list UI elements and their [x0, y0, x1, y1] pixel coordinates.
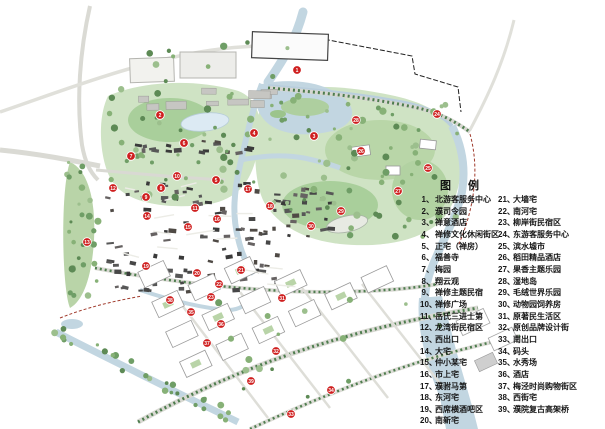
map-marker-32: 32: [272, 347, 281, 356]
tree: [140, 116, 145, 121]
marker-number: 5: [215, 178, 218, 184]
map-marker-37: 37: [203, 339, 212, 348]
legend-item: 21、大墙宅: [498, 194, 577, 206]
tree: [333, 127, 336, 130]
tree: [92, 261, 98, 267]
legend-item-label: 翔云观: [435, 276, 459, 288]
tree: [119, 140, 125, 146]
legend-item: 19、西席横酒吧区: [420, 404, 499, 416]
tree: [143, 373, 148, 378]
marker-number: 33: [288, 412, 294, 418]
legend-item: 23、柳岸街民宿区: [498, 217, 577, 229]
legend-item-number: 4、: [420, 229, 434, 241]
tree: [320, 198, 323, 201]
tree: [216, 146, 223, 153]
oldtown-building: [213, 227, 220, 232]
map-marker-25: 25: [424, 164, 433, 173]
map-marker-35: 35: [187, 308, 196, 317]
legend-item-number: 26、: [498, 252, 512, 264]
tree: [165, 381, 169, 385]
legend-item: 9、禅修主题民宿: [420, 287, 499, 299]
tree: [162, 387, 168, 393]
tree: [245, 356, 252, 363]
tree: [217, 402, 224, 409]
tree: [164, 79, 168, 83]
tree: [204, 105, 211, 112]
oldtown-building: [115, 285, 119, 288]
tree: [404, 302, 408, 306]
tree: [373, 211, 378, 216]
map-marker-13: 13: [83, 238, 92, 247]
marker-number: 6: [183, 141, 186, 147]
oldtown-building: [205, 201, 212, 205]
tree: [203, 397, 207, 401]
tree: [280, 172, 287, 179]
marker-number: 37: [204, 341, 210, 347]
legend-item-label: 禅修主题民宿: [435, 287, 483, 299]
legend-item-number: 20、: [420, 415, 434, 427]
lane: [217, 238, 238, 239]
map-marker-4: 4: [250, 129, 259, 138]
south-block: [166, 320, 199, 347]
oldtown-building: [175, 274, 183, 279]
tree: [107, 111, 112, 116]
marker-number: 23: [208, 295, 214, 301]
legend-item-label: 果香主题乐园: [513, 264, 561, 276]
legend-item-number: 34、: [498, 346, 512, 358]
tree: [346, 379, 351, 384]
tree: [346, 188, 352, 194]
legend-item-number: 35、: [498, 357, 512, 369]
map-marker-38: 38: [166, 296, 175, 305]
marker-number: 17: [245, 187, 251, 193]
legend-item-label: 北游客服务中心: [435, 194, 491, 206]
oldtown-building: [249, 217, 256, 221]
lane: [266, 267, 283, 269]
legend-item: 3、禅意酒店: [420, 217, 499, 229]
oldtown-building: [238, 184, 242, 188]
industrial-slab: [251, 100, 265, 107]
tree: [401, 124, 408, 131]
oldtown-building-east: [324, 218, 328, 221]
oldtown-building-east: [286, 224, 290, 227]
legend-item: 22、南河宅: [498, 206, 577, 218]
legend-item: 31、原著民生活区: [498, 311, 577, 323]
legend-item: 14、大宅: [420, 346, 499, 358]
marker-number: 30: [308, 224, 314, 230]
legend-item: 13、西出口: [420, 334, 499, 346]
marker-number: 8: [160, 186, 163, 192]
legend-item-number: 7、: [420, 264, 434, 276]
oldtown-building: [187, 271, 192, 274]
tree: [392, 233, 399, 240]
tree: [213, 126, 217, 130]
tree: [243, 367, 250, 374]
legend-item: 25、滨水墟市: [498, 241, 577, 253]
map-marker-3: 3: [310, 132, 319, 141]
legend-item-label: 南河宅: [513, 206, 537, 218]
tree: [154, 90, 161, 97]
marker-number: 32: [273, 349, 279, 355]
legend-item-label: 禅修广场: [435, 299, 467, 311]
legend-item-number: 9、: [420, 287, 434, 299]
marker-number: 27: [395, 189, 401, 195]
legend-item-label: 稻田精品酒店: [513, 252, 561, 264]
lane: [157, 247, 177, 249]
tree: [413, 150, 419, 156]
tree: [347, 297, 353, 303]
tree: [247, 116, 254, 123]
legend-item: 27、果香主题乐园: [498, 264, 577, 276]
legend-item-number: 21、: [498, 194, 512, 206]
tree: [96, 343, 99, 346]
marker-number: 10: [174, 174, 180, 180]
tree: [393, 124, 399, 130]
legend-item-number: 1、: [420, 194, 434, 206]
legend-item-label: 大墙宅: [513, 194, 537, 206]
map-marker-1: 1: [293, 66, 302, 75]
legend-item-label: 原著民生活区: [513, 311, 561, 323]
oldtown-building: [258, 232, 262, 236]
marker-number: 31: [279, 296, 285, 302]
legend-item: 15、仲小某宅: [420, 357, 499, 369]
oldtown-building-east: [327, 227, 335, 231]
map-marker-24: 24: [433, 110, 442, 119]
oldtown-building: [153, 254, 158, 259]
tree: [227, 94, 233, 100]
legend-item: 17、濮驸马第: [420, 381, 499, 393]
legend-item: 32、原创品牌设计街: [498, 322, 577, 334]
tree: [150, 160, 154, 164]
building-north-3: [130, 57, 175, 83]
legend-item: 11、岳氏三进士第: [420, 311, 499, 323]
map-marker-15: 15: [184, 223, 193, 232]
tree: [71, 293, 76, 298]
pavilion-park-3: [420, 139, 437, 150]
marker-number: 25: [425, 166, 431, 172]
legend-item-number: 37、: [498, 381, 512, 393]
legend-item: 18、东河宅: [420, 392, 499, 404]
oldtown-building: [199, 195, 203, 198]
tree: [379, 108, 386, 115]
tree: [223, 417, 228, 422]
oldtown-building: [254, 189, 259, 194]
oldtown-building-north: [174, 148, 182, 153]
tree: [400, 180, 405, 185]
legend-item-number: 31、: [498, 311, 512, 323]
legend-item: 34、码头: [498, 346, 577, 358]
oldtown-building: [215, 211, 222, 214]
legend-item-number: 29、: [498, 287, 512, 299]
legend-item-number: 28、: [498, 276, 512, 288]
legend-item-label: 东游客服务中心: [513, 229, 569, 241]
legend-item-label: 梅泾时尚购物街区: [513, 381, 577, 393]
tree: [157, 121, 162, 126]
tree: [252, 180, 255, 183]
tree: [118, 86, 124, 92]
industrial-slab: [228, 99, 249, 105]
oldtown-building: [237, 252, 242, 256]
legend-item: 39、濮院复古高架桥: [498, 404, 577, 416]
tree: [290, 97, 297, 104]
legend-item-number: 38、: [498, 392, 512, 404]
tree: [220, 154, 227, 161]
tree: [307, 128, 312, 133]
oldtown-building: [168, 228, 176, 233]
tree: [71, 240, 76, 245]
tree: [285, 46, 289, 50]
legend-item-label: 柳岸街民宿区: [513, 217, 561, 229]
legend-item: 5、正宅（禅房）: [420, 241, 499, 253]
tree: [391, 113, 394, 116]
tree: [111, 353, 115, 357]
legend-column-1: 1、北游客服务中心2、濮司令园3、禅意酒店4、禅修文化休闲街区5、正宅（禅房）6…: [420, 194, 499, 427]
marker-number: 22: [216, 282, 222, 288]
industrial-slab: [147, 104, 159, 110]
tree: [277, 332, 281, 336]
industrial-slab: [138, 96, 148, 102]
tree: [51, 329, 58, 336]
oldtown-building: [110, 209, 114, 213]
oldtown-building-east: [274, 193, 280, 195]
oldtown-building: [232, 288, 240, 293]
legend-item-label: 湿地岛: [513, 276, 537, 288]
legend-item: 28、湿地岛: [498, 276, 577, 288]
legend-item-label: 原创品牌设计街: [513, 322, 569, 334]
marker-number: 24: [434, 112, 440, 118]
map-marker-14: 14: [143, 212, 152, 221]
map-marker-30: 30: [307, 222, 316, 231]
legend-item-number: 33、: [498, 334, 512, 346]
legend-item-label: 大宅: [435, 346, 451, 358]
tree: [69, 220, 72, 223]
legend-item-label: 南出口: [513, 334, 537, 346]
tree: [120, 368, 125, 373]
oldtown-building: [224, 235, 231, 239]
legend-item-number: 14、: [420, 346, 434, 358]
legend-item-label: 正宅（禅房）: [435, 241, 483, 253]
marker-number: 14: [144, 214, 150, 220]
tree: [81, 262, 86, 267]
oldtown-building-east: [302, 212, 306, 216]
legend-item-number: 32、: [498, 322, 512, 334]
tree: [91, 228, 96, 233]
legend-item-label: 市上宅: [435, 369, 459, 381]
tree: [346, 102, 351, 107]
map-marker-8: 8: [157, 184, 166, 193]
tree: [256, 365, 263, 372]
marker-number: 36: [218, 322, 224, 328]
oldtown-building: [115, 245, 123, 249]
legend-item-label: 动物园饲养房: [513, 299, 561, 311]
tree: [242, 387, 245, 390]
legend-item-number: 24、: [498, 229, 512, 241]
marker-number: 15: [185, 225, 191, 231]
oldtown-building-east: [316, 207, 322, 210]
legend-item-number: 5、: [420, 241, 434, 253]
legend-item-label: 水秀场: [513, 357, 537, 369]
tree: [432, 174, 438, 180]
map-marker-11: 11: [191, 204, 200, 213]
oldtown-building-east: [292, 213, 299, 218]
tree: [283, 117, 287, 121]
legend-item-number: 6、: [420, 252, 434, 264]
legend-item-label: 毛绒世界乐园: [513, 287, 561, 299]
legend-item-label: 梅园: [435, 264, 451, 276]
tree: [164, 178, 168, 182]
tree: [111, 124, 118, 131]
legend-title: 图 例: [440, 177, 486, 193]
legend-item-number: 15、: [420, 357, 434, 369]
oldtown-building: [208, 260, 214, 264]
oldtown-building: [150, 232, 157, 237]
tree: [406, 217, 411, 222]
tree: [170, 391, 174, 395]
map-marker-10: 10: [173, 172, 182, 181]
tree: [270, 74, 275, 79]
tree: [215, 299, 222, 306]
map-marker-18: 18: [266, 202, 275, 211]
legend-item: 20、南新宅: [420, 415, 499, 427]
oldtown-building: [221, 210, 227, 215]
tree: [353, 212, 360, 219]
legend-item: 12、龙湾街民宿区: [420, 322, 499, 334]
legend-item-label: 禅意酒店: [435, 217, 467, 229]
tree: [231, 143, 235, 147]
tree: [184, 176, 188, 180]
legend-item-label: 禅修文化休闲街区: [435, 229, 499, 241]
legend-item: 10、禅修广场: [420, 299, 499, 311]
legend-item-number: 39、: [498, 404, 512, 416]
tree: [382, 153, 389, 160]
tree: [69, 342, 73, 346]
legend-item: 4、禅修文化休闲街区: [420, 229, 499, 241]
tree: [77, 203, 80, 206]
oldtown-building-north: [142, 148, 146, 153]
tree: [193, 403, 197, 407]
tree: [349, 127, 352, 130]
tree: [413, 142, 419, 148]
tree: [201, 406, 206, 411]
oldtown-building: [105, 196, 111, 199]
tree: [85, 292, 92, 299]
legend-item: 29、毛绒世界乐园: [498, 287, 577, 299]
legend-item-label: 西出口: [435, 334, 459, 346]
legend-item: 37、梅泾时尚购物街区: [498, 381, 577, 393]
map-marker-21: 21: [237, 266, 246, 275]
legend-item-label: 龙湾街民宿区: [435, 322, 483, 334]
tree: [79, 163, 85, 169]
tree: [294, 134, 300, 140]
tree: [270, 104, 274, 108]
tree: [318, 159, 321, 162]
legend-item-number: 23、: [498, 217, 512, 229]
tree: [227, 159, 233, 165]
tree: [95, 279, 99, 283]
tree: [196, 160, 200, 164]
marker-number: 26: [358, 149, 364, 155]
tree: [306, 395, 310, 399]
legend-item: 2、濮司令园: [420, 206, 499, 218]
tree: [279, 101, 283, 105]
oldtown-building: [247, 242, 255, 246]
legend-item-label: 濮司令园: [435, 206, 467, 218]
oldtown-building: [179, 287, 185, 291]
tree: [67, 174, 72, 179]
road-northeast-exit: [470, 20, 514, 130]
legend-item-number: 3、: [420, 217, 434, 229]
marker-number: 20: [194, 271, 200, 277]
map-marker-6: 6: [180, 139, 189, 148]
tree: [61, 326, 67, 332]
tree: [265, 313, 271, 319]
oldtown-building-east: [301, 188, 306, 192]
legend-item: 7、梅园: [420, 264, 499, 276]
marker-number: 21: [238, 268, 244, 274]
legend-item: 36、酒店: [498, 369, 577, 381]
tree: [175, 391, 179, 395]
tree: [415, 160, 421, 166]
tree: [220, 185, 227, 192]
tree: [226, 410, 231, 415]
tree: [228, 336, 234, 342]
tree: [417, 128, 421, 132]
oldtown-building: [113, 264, 119, 267]
oldtown-building: [260, 263, 264, 267]
tree: [190, 143, 194, 147]
map-marker-36: 36: [217, 320, 226, 329]
tree: [225, 150, 229, 154]
tree: [235, 170, 240, 175]
tree: [220, 43, 227, 50]
map-marker-12: 12: [109, 184, 118, 193]
tree: [403, 225, 407, 229]
tree: [67, 230, 71, 234]
lake-island: [281, 98, 329, 116]
map-marker-16: 16: [213, 215, 222, 224]
marker-number: 1: [296, 68, 299, 74]
tree: [179, 128, 183, 132]
tree: [171, 54, 175, 58]
map-marker-28: 28: [352, 116, 361, 125]
legend-item: 24、东游客服务中心: [498, 229, 577, 241]
tree: [346, 166, 350, 170]
road-northwest: [79, 6, 98, 180]
tree: [102, 348, 108, 354]
tree: [86, 213, 93, 220]
oldtown-building: [183, 268, 187, 272]
tree: [310, 186, 317, 193]
marker-number: 2: [159, 113, 162, 119]
legend-item-number: 11、: [420, 311, 434, 323]
marker-number: 18: [267, 204, 273, 210]
oldtown-building: [106, 242, 114, 245]
oldtown-building: [126, 272, 130, 277]
tree: [109, 177, 114, 182]
oldtown-building: [200, 235, 208, 238]
tree: [172, 194, 179, 201]
legend-item-label: 东河宅: [435, 392, 459, 404]
oldtown-building: [225, 254, 233, 259]
map-marker-39: 39: [247, 377, 256, 386]
oldtown-building: [126, 193, 130, 196]
tree: [306, 115, 310, 119]
legend-item-number: 2、: [420, 206, 434, 218]
legend-item-label: 西席横酒吧区: [435, 404, 483, 416]
industrial-slab: [202, 88, 217, 94]
tree: [347, 232, 353, 238]
marker-number: 7: [130, 154, 133, 160]
